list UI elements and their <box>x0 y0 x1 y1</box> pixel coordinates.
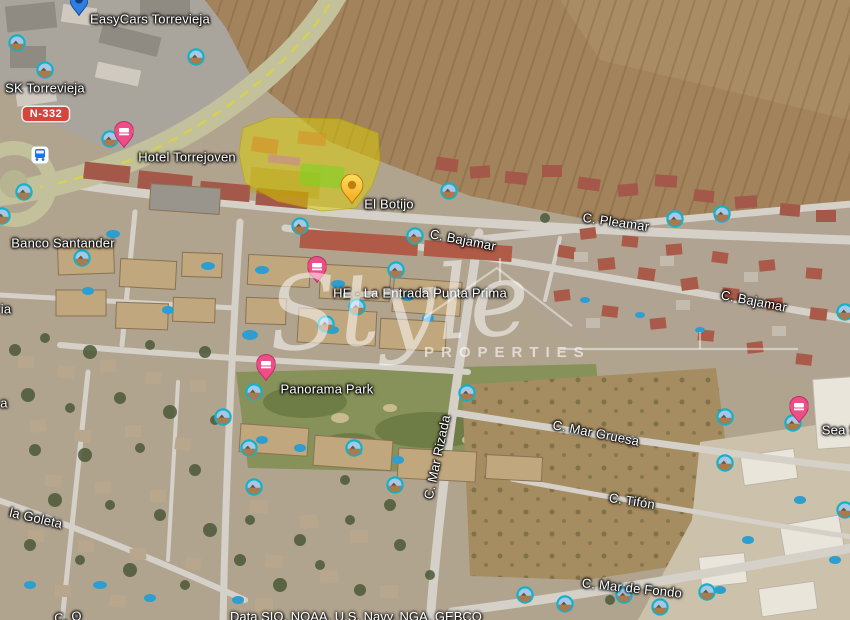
photo-sphere-icon[interactable] <box>73 249 92 268</box>
place-label: ia <box>1 302 12 317</box>
photo-sphere-icon[interactable] <box>317 315 336 334</box>
photo-sphere-icon[interactable] <box>836 501 850 520</box>
map-attribution: Data SIO, NOAA, U.S. Navy, NGA, GEBCO <box>230 609 482 620</box>
property-pin[interactable] <box>340 174 364 204</box>
street-label: C. O <box>54 608 83 620</box>
place-label: a <box>0 396 7 411</box>
lodging-pin[interactable] <box>790 396 809 423</box>
road-badge-n332: N-332 <box>23 107 69 121</box>
place-label: El Botijo <box>364 197 414 212</box>
photo-sphere-icon[interactable] <box>187 48 206 67</box>
photo-sphere-icon[interactable] <box>214 408 233 427</box>
photo-sphere-icon[interactable] <box>406 227 425 246</box>
place-label: Sea S <box>822 423 850 438</box>
photo-sphere-icon[interactable] <box>716 408 735 427</box>
photo-sphere-icon[interactable] <box>387 261 406 280</box>
photo-sphere-icon[interactable] <box>291 217 310 236</box>
place-label: SK Torrevieja <box>5 81 85 96</box>
bus-station-icon[interactable] <box>31 146 49 164</box>
lodging-pin[interactable] <box>257 354 276 381</box>
photo-sphere-icon[interactable] <box>836 303 850 322</box>
photo-sphere-icon[interactable] <box>556 595 575 614</box>
place-label: Banco Santander <box>11 236 114 251</box>
photo-sphere-icon[interactable] <box>15 183 34 202</box>
photo-sphere-icon[interactable] <box>245 478 264 497</box>
place-label: HE - La Entrada Punta Prima <box>333 286 507 301</box>
satellite-map[interactable]: EasyCars TorreviejaSK TorreviejaHotel To… <box>0 0 850 620</box>
lodging-pin[interactable] <box>115 121 134 148</box>
photo-sphere-icon[interactable] <box>698 583 717 602</box>
photo-sphere-icon[interactable] <box>716 454 735 473</box>
photo-sphere-icon[interactable] <box>345 439 364 458</box>
place-label: EasyCars Torrevieja <box>90 12 210 27</box>
photo-sphere-icon[interactable] <box>0 207 12 226</box>
photo-sphere-icon[interactable] <box>713 205 732 224</box>
photo-sphere-icon[interactable] <box>440 182 459 201</box>
place-label: Hotel Torrejoven <box>138 150 236 165</box>
photo-sphere-icon[interactable] <box>36 61 55 80</box>
photo-sphere-icon[interactable] <box>240 439 259 458</box>
place-label: Panorama Park <box>281 382 374 397</box>
photo-sphere-icon[interactable] <box>245 383 264 402</box>
photo-sphere-icon[interactable] <box>651 598 670 617</box>
property-highlight-area[interactable] <box>0 0 850 620</box>
photo-sphere-icon[interactable] <box>516 586 535 605</box>
photo-sphere-icon[interactable] <box>8 34 27 53</box>
photo-sphere-icon[interactable] <box>458 384 477 403</box>
place-pin[interactable] <box>70 0 88 16</box>
photo-sphere-icon[interactable] <box>386 476 405 495</box>
photo-sphere-icon[interactable] <box>666 210 685 229</box>
lodging-pin[interactable] <box>308 256 327 283</box>
